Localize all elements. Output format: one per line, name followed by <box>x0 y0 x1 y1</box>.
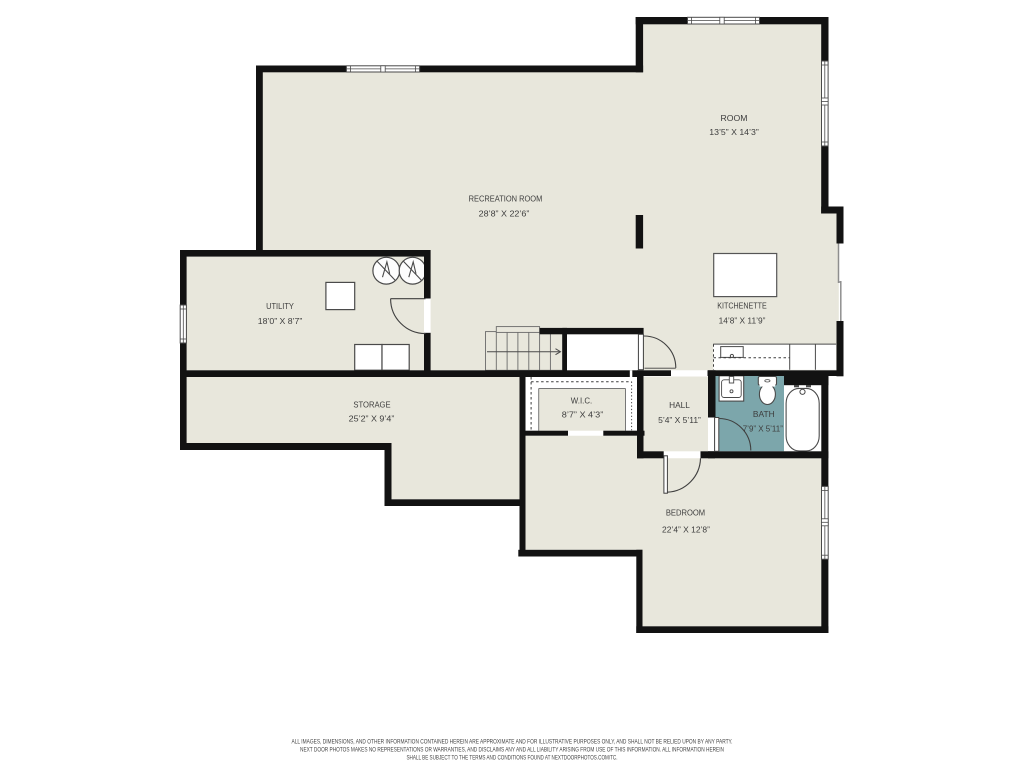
svg-text:13’5” X 14’3”: 13’5” X 14’3” <box>709 127 759 137</box>
svg-text:7’9” X 5’11”: 7’9” X 5’11” <box>743 424 783 434</box>
svg-text:BEDROOM: BEDROOM <box>666 507 705 517</box>
svg-text:SHALL BE SUBJECT TO THE TERMS: SHALL BE SUBJECT TO THE TERMS AND CONDIT… <box>407 756 618 762</box>
svg-text:18’0” X 8’7”: 18’0” X 8’7” <box>258 316 303 326</box>
svg-text:KITCHENETTE: KITCHENETTE <box>717 300 767 310</box>
svg-text:28’8” X 22’6”: 28’8” X 22’6” <box>479 208 530 218</box>
svg-text:ROOM: ROOM <box>721 113 748 123</box>
svg-text:NEXT DOOR PHOTOS MAKES NO REPR: NEXT DOOR PHOTOS MAKES NO REPRESENTATION… <box>300 748 724 754</box>
svg-text:UTILITY: UTILITY <box>266 301 294 311</box>
svg-text:BATH: BATH <box>753 409 775 419</box>
svg-text:8’7” X 4’3”: 8’7” X 4’3” <box>562 410 604 420</box>
svg-text:HALL: HALL <box>669 400 690 410</box>
svg-text:RECREATION ROOM: RECREATION ROOM <box>469 193 543 203</box>
svg-text:22’4” X 12’8”: 22’4” X 12’8” <box>662 525 710 535</box>
svg-text:5’4” X 5’11”: 5’4” X 5’11” <box>658 415 701 425</box>
svg-text:W.I.C.: W.I.C. <box>571 395 593 405</box>
svg-text:STORAGE: STORAGE <box>353 400 390 410</box>
svg-text:25’2” X 9’4”: 25’2” X 9’4” <box>349 414 395 424</box>
svg-text:ALL IMAGES, DIMENSIONS, AND OT: ALL IMAGES, DIMENSIONS, AND OTHER INFORM… <box>292 740 733 746</box>
svg-text:14’8” X 11’9”: 14’8” X 11’9” <box>719 315 766 325</box>
